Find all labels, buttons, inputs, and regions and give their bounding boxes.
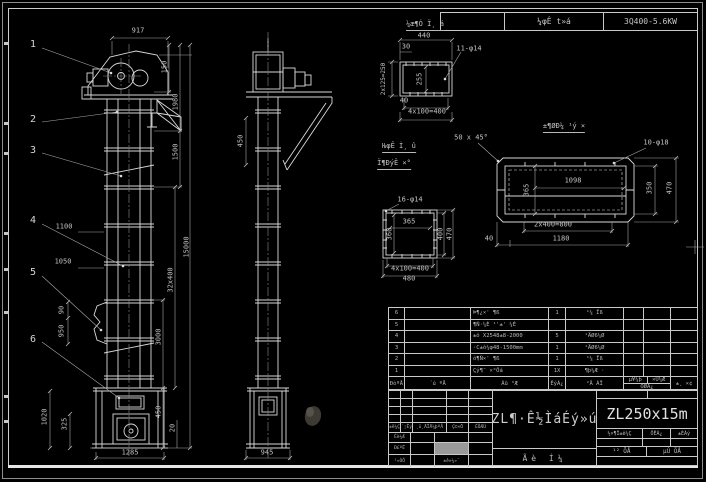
header-weight-unit: µ¥¼þ (624, 377, 648, 383)
drawing-title: ZL¶·Ê½ÌáÉý»ú (493, 391, 596, 449)
cell-name: ô¶Ñ×' ¶ß (471, 354, 549, 365)
header-weight-total: ×Ü¼Æ (648, 377, 671, 383)
detail-b-dim-width: 480 (403, 276, 416, 283)
rev-header-date: ÈÕÆÚ (469, 423, 492, 432)
balloon-4: 4 (30, 216, 36, 226)
detail-b-dim-right-inner: 400 (438, 228, 445, 241)
sheet-total: ¹² ÕÅ (597, 447, 647, 456)
dim-lower: 3000 (156, 329, 163, 346)
header-name: Ãû ³Æ (471, 377, 549, 390)
detail-a-holes-callout: 11-φ14 (456, 46, 481, 53)
cell-material: ¹ÄØ6¼Ø (566, 331, 624, 342)
revision-grid: ±ê¼Ç ´¦Êý ¸ü¸ÄÎÄ¼þºÅ Ç©×Ö ÈÕÆÚ Éè¼Æ Ð£ºË… (389, 391, 493, 465)
cell-code (405, 354, 471, 365)
dim-overall-height: 15000 (184, 236, 191, 257)
cell-weight-unit (624, 354, 644, 365)
cell-name: Þ¶¿×' ¶ß (471, 308, 549, 319)
detail-c-dim-corner: 40 (485, 236, 493, 243)
detail-c-title: ±¶ØÐ¼ ¹ý × (543, 123, 585, 133)
right-header-stage: ½×¶Î±ê¼Ç (597, 429, 643, 438)
detail-b-title-2: Ï¶ÐýÊ ×° (377, 160, 411, 170)
cell-note (671, 354, 697, 365)
model-number: ZL250x15m (597, 399, 697, 429)
cell-material (566, 320, 624, 331)
balloon-6: 6 (30, 335, 36, 345)
dim-base-a: 1020 (42, 409, 49, 426)
dim-left-a: 1100 (56, 224, 73, 231)
header-seq: ÐòºÅ (389, 377, 405, 390)
detail-b-dim-pitch: 4x100=400 (391, 266, 429, 273)
detail-c-dim-pitch: 2x400=800 (534, 222, 572, 229)
left-row-standard: ±ê×¼»¯ (435, 455, 469, 467)
detail-c-dim-right-outer: 470 (667, 182, 674, 195)
cell-note (671, 343, 697, 354)
spec-bar-label: ¼φÊ t»á (504, 13, 603, 30)
cell-name: ·C±ô¼φ48-1500mm (471, 343, 549, 354)
table-row: 6 Þ¶¿×' ¶ß 1 ¹¼ Ïß (389, 308, 697, 320)
left-row-check: Ð£ºË (389, 443, 411, 454)
table-row: 5 ¶Ñ·¼È ¹'±' ¼È (389, 320, 697, 332)
balloon-2: 2 (30, 115, 36, 125)
cell-weight-total (644, 320, 671, 331)
cell-note (671, 366, 697, 377)
rev-header-mark: ±ê¼Ç (389, 423, 401, 432)
dim-foot: 20 (170, 424, 177, 432)
table-row: 1 Çý¶¯ ×°Öá 1X ¶þ¼Æ · (389, 366, 697, 378)
side-view-geometry (246, 38, 332, 448)
cell-weight-unit (624, 331, 644, 342)
header-qty: ÊýÁ¿ (549, 377, 566, 390)
cell-weight-unit (624, 343, 644, 354)
cell-note (671, 331, 697, 342)
dim-left-b: 1050 (55, 259, 72, 266)
cell-material: ¹ÄØ6¼Ø (566, 343, 624, 354)
right-header-mass: ÖÊÁ¿ (643, 429, 671, 438)
cell-name: Çý¶¯ ×°Öá (471, 366, 549, 377)
gray-stamp-cell (435, 443, 469, 454)
front-view-geometry (82, 51, 181, 448)
balloon-1: 1 (30, 40, 36, 50)
cell-seq: 1 (389, 366, 405, 377)
model-area: ZL250x15m ½×¶Î±ê¼Ç ÖÊÁ¿ ±ÈÀý ¹² ÕÅ µÚ ÕÅ (597, 391, 697, 465)
cell-qty: 1 (549, 308, 566, 319)
cell-code (405, 331, 471, 342)
ink-smudge (303, 404, 324, 427)
right-header-scale: ±ÈÀý (671, 429, 697, 438)
table-header-row: ÐòºÅ ´ú ºÅ Ãû ³Æ ÊýÁ¿ ²Ä ÁÏ µ¥¼þ ×Ü¼Æ ÖØ… (389, 377, 697, 390)
sheet-page: µÚ ÕÅ (647, 447, 697, 456)
detail-a-dim-offset: 30 (402, 44, 410, 51)
rev-header-doc: ¸ü¸ÄÎÄ¼þºÅ (413, 423, 447, 432)
dim-inlet-a: 90 (59, 306, 66, 314)
cell-weight-total (644, 366, 671, 377)
cell-weight-unit (624, 320, 644, 331)
detail-a-dim-corner: 40 (400, 98, 408, 105)
dim-base-b: 325 (62, 418, 69, 431)
left-row-craft: ¹¤ÒÕ (389, 455, 411, 467)
cell-code (405, 320, 471, 331)
balloon-5: 5 (30, 268, 36, 278)
detail-a-dim-left: 2x125=250 (381, 63, 387, 96)
dim-inlet-b: 950 (59, 325, 66, 338)
header-material: ²Ä ÁÏ (566, 377, 624, 390)
title-bottom-center: Ãè Í¼ (493, 449, 596, 467)
cell-seq: 2 (389, 354, 405, 365)
cell-name: ±ô X2548±8-2000 (471, 331, 549, 342)
parts-table: 6 Þ¶¿×' ¶ß 1 ¹¼ Ïß 5 ¶Ñ·¼È ¹'±' ¼È 4 ±ô … (388, 307, 698, 390)
dim-spacing: 32x400 (168, 267, 175, 292)
cell-code (405, 308, 471, 319)
cell-seq: 3 (389, 343, 405, 354)
detail-c-geometry (497, 158, 634, 222)
cell-weight-unit (624, 366, 644, 377)
detail-b-title-1: ǶφÊ Ì¸ û (382, 143, 416, 153)
dim-side-bottom-width: 945 (261, 450, 274, 457)
header-note: ±¸ ×¢ (671, 377, 697, 390)
balloon-3: 3 (30, 146, 36, 156)
rev-header-sign: Ç©×Ö (447, 423, 469, 432)
detail-b-dim-inner-h: 360 (387, 228, 394, 241)
dim-head: 150 (162, 61, 169, 74)
cell-weight-total (644, 354, 671, 365)
cell-code (405, 366, 471, 377)
dim-bottom-width: 1285 (122, 450, 139, 457)
spec-bar-empty-cell (441, 13, 504, 30)
detail-c-dim-right-inner: 350 (647, 182, 654, 195)
cell-qty: 1 (549, 354, 566, 365)
detail-c-dim-width: 1180 (553, 236, 570, 243)
cad-drawing-sheet: ¼φÊ t»á 3Q400-5.6KW 1 2 3 4 5 6 917 150 … (0, 0, 706, 482)
spec-bar-model: 3Q400-5.6KW (603, 13, 697, 30)
title-area: ZL¶·Ê½ÌáÉý»ú Ãè Í¼ (493, 391, 597, 465)
detail-b-dim-right-outer: 470 (447, 228, 454, 241)
table-row: 4 ±ô X2548±8-2000 5 ¹ÄØ6¼Ø (389, 331, 697, 343)
cell-weight-total (644, 331, 671, 342)
title-block: ±ê¼Ç ´¦Êý ¸ü¸ÄÎÄ¼þºÅ Ç©×Ö ÈÕÆÚ Éè¼Æ Ð£ºË… (388, 390, 698, 466)
detail-b-holes-callout: 16-φ14 (397, 197, 422, 204)
table-row: 3 ·C±ô¼φ48-1500mm 1 ¹ÄØ6¼Ø (389, 343, 697, 355)
spec-bar: ¼φÊ t»á 3Q400-5.6KW (440, 12, 698, 31)
dim-side-depth: 450 (238, 135, 245, 148)
detail-a-dim-inner: 255 (417, 73, 424, 86)
cell-material: ¹¼ Ïß (566, 354, 624, 365)
cell-qty (549, 320, 566, 331)
detail-c-dim-inner: 1098 (565, 178, 582, 185)
cell-code (405, 343, 471, 354)
detail-a-title: ¼æ¶Ó Ï¸ á (406, 21, 444, 31)
cell-note (671, 308, 697, 319)
detail-c-holes-callout: 10-φ18 (643, 140, 668, 147)
cell-material: ¹¼ Ïß (566, 308, 624, 319)
dim-top-width: 917 (132, 28, 145, 35)
detail-a-dim-width: 440 (418, 33, 431, 40)
rev-header-count: ´¦Êý (401, 423, 413, 432)
cell-note (671, 320, 697, 331)
dim-upper: 1980 (173, 94, 180, 111)
cell-weight-total (644, 343, 671, 354)
cell-seq: 5 (389, 320, 405, 331)
cell-material: ¶þ¼Æ · (566, 366, 624, 377)
cell-seq: 4 (389, 331, 405, 342)
cell-qty: 5 (549, 331, 566, 342)
detail-a-dim-pitch: 4x100=400 (408, 109, 446, 116)
cell-weight-total (644, 308, 671, 319)
left-row-design: Éè¼Æ (389, 433, 411, 442)
dim-upper2: 1500 (173, 144, 180, 161)
dim-boot-height: 450 (156, 406, 163, 419)
cell-weight-unit (624, 308, 644, 319)
detail-c-chamfer-callout: 50 x 45° (454, 135, 488, 142)
header-code: ´ú ºÅ (405, 377, 471, 390)
cell-qty: 1X (549, 366, 566, 377)
cell-qty: 1 (549, 343, 566, 354)
cell-name: ¶Ñ·¼È ¹'±' ¼È (471, 320, 549, 331)
detail-c-dim-left: 365 (524, 184, 531, 197)
detail-b-dim-inner-w: 365 (403, 219, 416, 226)
cell-seq: 6 (389, 308, 405, 319)
table-row: 2 ô¶Ñ×' ¶ß 1 ¹¼ Ïß (389, 354, 697, 366)
header-weight: µ¥¼þ ×Ü¼Æ ÖØÁ¿ (624, 377, 671, 390)
